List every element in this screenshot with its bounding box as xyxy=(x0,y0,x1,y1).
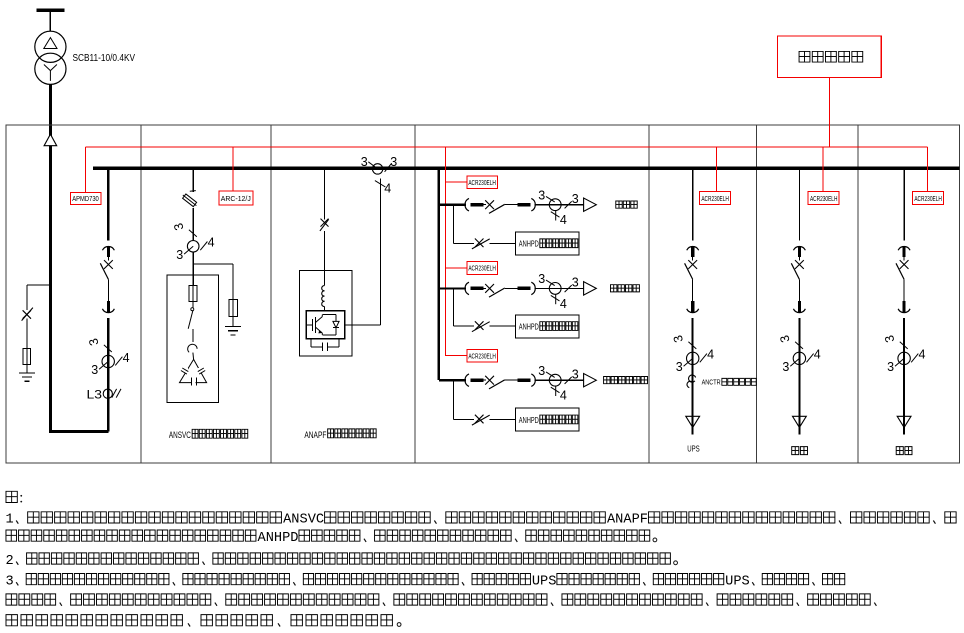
svg-text:4: 4 xyxy=(919,348,926,362)
svg-text:3: 3 xyxy=(572,192,579,206)
svg-text:3: 3 xyxy=(6,574,14,589)
svg-text:3: 3 xyxy=(572,367,579,381)
svg-text:UPS: UPS xyxy=(687,443,700,453)
svg-text:3: 3 xyxy=(676,360,683,374)
svg-text:3: 3 xyxy=(572,276,579,290)
svg-text:4: 4 xyxy=(707,348,714,362)
svg-text:UPS: UPS xyxy=(532,574,557,589)
svg-text:ANHPD: ANHPD xyxy=(519,322,539,332)
svg-text:4: 4 xyxy=(560,213,567,227)
svg-text:UPS: UPS xyxy=(725,574,750,589)
svg-text:3: 3 xyxy=(538,364,545,378)
svg-text:4: 4 xyxy=(560,297,567,311)
svg-text:ACR230ELH: ACR230ELH xyxy=(468,352,496,361)
svg-text:ANSVC: ANSVC xyxy=(169,430,191,441)
svg-text:ANHPD: ANHPD xyxy=(519,415,539,425)
svg-text:SCB11-10/0.4KV: SCB11-10/0.4KV xyxy=(73,53,136,64)
svg-text:2: 2 xyxy=(6,554,14,569)
svg-text:4: 4 xyxy=(123,351,130,365)
svg-text:4: 4 xyxy=(384,181,391,195)
svg-text:ANAPF: ANAPF xyxy=(607,513,648,528)
svg-text:3: 3 xyxy=(176,248,183,262)
svg-text:ANCTR: ANCTR xyxy=(702,378,721,387)
svg-text:ANSVC: ANSVC xyxy=(283,513,324,528)
svg-text:ARC-12/J: ARC-12/J xyxy=(221,194,251,203)
svg-text:APMD730: APMD730 xyxy=(72,194,99,203)
svg-text:3: 3 xyxy=(538,272,545,286)
svg-text:3: 3 xyxy=(361,155,368,169)
svg-text:4: 4 xyxy=(208,236,215,250)
svg-text:4: 4 xyxy=(814,348,821,362)
svg-text:3: 3 xyxy=(538,188,545,202)
svg-text:ACR230ELH: ACR230ELH xyxy=(468,264,496,273)
svg-text:3: 3 xyxy=(91,363,98,377)
svg-text:3: 3 xyxy=(390,155,397,169)
svg-text:ANAPF: ANAPF xyxy=(304,430,326,441)
svg-text:4: 4 xyxy=(560,389,567,403)
svg-text:ACR230ELH: ACR230ELH xyxy=(701,194,729,203)
svg-text:ANHPD: ANHPD xyxy=(519,239,539,249)
svg-text:1: 1 xyxy=(6,513,14,528)
svg-text:3: 3 xyxy=(887,360,894,374)
svg-text:3: 3 xyxy=(782,360,789,374)
svg-text:ACR230ELH: ACR230ELH xyxy=(914,194,942,203)
svg-text:L3: L3 xyxy=(87,390,103,402)
svg-text:ANHPD: ANHPD xyxy=(258,531,299,546)
svg-text:ACR230ELH: ACR230ELH xyxy=(810,194,838,203)
svg-text:ACR230ELH: ACR230ELH xyxy=(468,178,496,187)
